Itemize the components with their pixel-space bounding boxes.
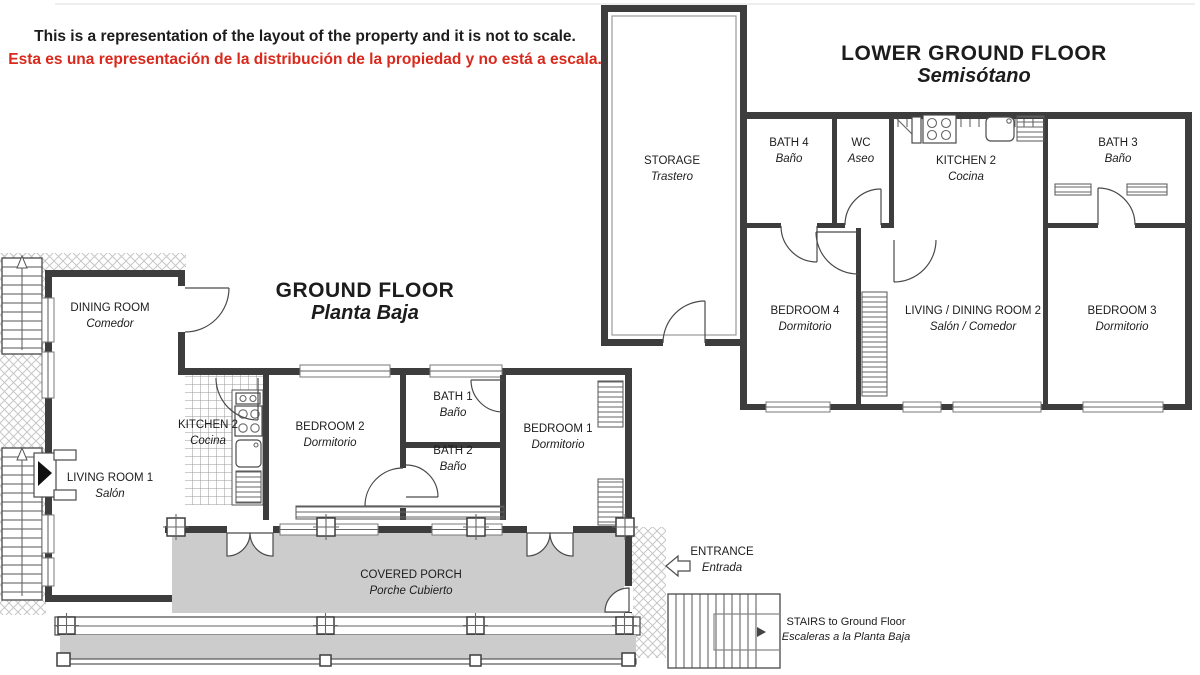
room-name: BATH 2	[433, 443, 472, 459]
room-label-bath-3: BATH 3 Baño	[1098, 135, 1137, 167]
room-name-es: Baño	[433, 405, 472, 421]
entrance-label: ENTRANCE Entrada	[690, 544, 753, 576]
room-name-es: Baño	[769, 151, 808, 167]
room-name-es: Baño	[433, 459, 472, 475]
room-name-es: Comedor	[70, 316, 149, 332]
room-name: KITCHEN 2	[936, 153, 996, 169]
interior-stairs-icon	[862, 292, 887, 396]
room-name-es: Porche Cubierto	[360, 583, 462, 599]
entrance-stairs-icon	[668, 594, 780, 668]
fridge-icon	[236, 471, 261, 503]
window	[766, 402, 1163, 412]
room-label-storage: STORAGE Trastero	[644, 153, 700, 185]
room-name: BEDROOM 3	[1087, 303, 1156, 319]
room-name-es: Dormitorio	[523, 437, 592, 453]
room-label-covered-porch: COVERED PORCH Porche Cubierto	[360, 567, 462, 599]
window-seat	[296, 506, 504, 519]
stairs-note: STAIRS to Ground Floor Escaleras a la Pl…	[782, 615, 910, 645]
room-name: KITCHEN 2	[178, 417, 238, 433]
stairs-note-es: Escaleras a la Planta Baja	[782, 630, 910, 645]
door-arc	[663, 301, 705, 343]
room-name-es: Dormitorio	[295, 435, 364, 451]
floor-plan-drawing	[0, 0, 1200, 675]
room-name-es: Salón / Comedor	[905, 319, 1041, 335]
room-label-bath-1: BATH 1 Baño	[433, 389, 472, 421]
floor-plan-page: This is a representation of the layout o…	[0, 0, 1200, 675]
sink-icon	[986, 117, 1014, 141]
stove-icon	[912, 115, 956, 143]
porch-railing	[54, 613, 640, 666]
lower-ground-floor-title-en: LOWER GROUND FLOOR	[841, 42, 1107, 65]
room-label-bedroom-2: BEDROOM 2 Dormitorio	[295, 419, 364, 451]
disclaimer-english: This is a representation of the layout o…	[8, 26, 602, 49]
entrance-label-es: Entrada	[690, 560, 753, 576]
room-name-es: Salón	[67, 486, 153, 502]
room-name: BEDROOM 4	[770, 303, 839, 319]
room-name: LIVING ROOM 1	[67, 470, 153, 486]
room-name: BATH 3	[1098, 135, 1137, 151]
room-name: DINING ROOM	[70, 300, 149, 316]
window-sill	[1055, 184, 1091, 195]
room-label-bedroom-3: BEDROOM 3 Dormitorio	[1087, 303, 1156, 335]
ground-floor-title-es: Planta Baja	[276, 302, 455, 325]
room-label-kitchen-gf: KITCHEN 2 Cocina	[178, 417, 238, 449]
drainer-icon	[1017, 116, 1044, 141]
disclaimer-spanish: Esta es una representación de la distrib…	[8, 49, 602, 72]
door-arc	[177, 286, 229, 332]
ground-floor-title: GROUND FLOOR Planta Baja	[276, 279, 455, 325]
room-name-es: Trastero	[644, 169, 700, 185]
entrance-arrow-icon	[666, 556, 690, 576]
kitchen2-counter	[897, 115, 1044, 143]
room-name: STORAGE	[644, 153, 700, 169]
room-name-es: Dormitorio	[770, 319, 839, 335]
room-name: BEDROOM 1	[523, 421, 592, 437]
covered-porch-area	[54, 514, 640, 666]
room-name-es: Baño	[1098, 151, 1137, 167]
room-name: COVERED PORCH	[360, 567, 462, 583]
ground-floor-title-en: GROUND FLOOR	[276, 279, 455, 302]
room-label-living-room-1: LIVING ROOM 1 Salón	[67, 470, 153, 502]
room-label-wc: WC Aseo	[848, 135, 874, 167]
room-label-bath-2: BATH 2 Baño	[433, 443, 472, 475]
disclaimer: This is a representation of the layout o…	[8, 26, 602, 71]
window-sill	[1127, 184, 1167, 195]
room-name-es: Aseo	[848, 151, 874, 167]
room-name: BEDROOM 2	[295, 419, 364, 435]
wardrobe	[598, 381, 623, 427]
room-name-es: Cocina	[178, 433, 238, 449]
room-label-bedroom-4: BEDROOM 4 Dormitorio	[770, 303, 839, 335]
room-label-bath-4: BATH 4 Baño	[769, 135, 808, 167]
lower-ground-floor-title-es: Semisótano	[841, 65, 1107, 88]
room-name: LIVING / DINING ROOM 2	[905, 303, 1041, 319]
stairs-note-en: STAIRS to Ground Floor	[782, 615, 910, 630]
room-name: BATH 4	[769, 135, 808, 151]
sink-icon	[236, 440, 261, 467]
entrance-label-en: ENTRANCE	[690, 544, 753, 560]
room-label-living-dining-room-2: LIVING / DINING ROOM 2 Salón / Comedor	[905, 303, 1041, 335]
room-name-es: Cocina	[936, 169, 996, 185]
lower-ground-floor-title: LOWER GROUND FLOOR Semisótano	[841, 42, 1107, 88]
room-name: WC	[848, 135, 874, 151]
room-name: BATH 1	[433, 389, 472, 405]
room-label-dining-room: DINING ROOM Comedor	[70, 300, 149, 332]
room-label-bedroom-1: BEDROOM 1 Dormitorio	[523, 421, 592, 453]
room-name-es: Dormitorio	[1087, 319, 1156, 335]
room-label-kitchen-2: KITCHEN 2 Cocina	[936, 153, 996, 185]
